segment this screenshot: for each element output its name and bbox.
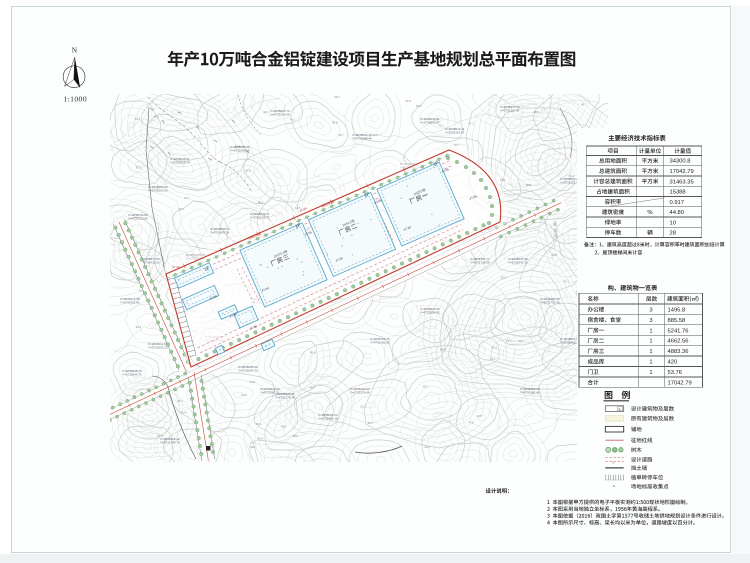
svg-text:Y=5731229.77: Y=5731229.77 bbox=[250, 215, 270, 219]
svg-text:50.5: 50.5 bbox=[135, 117, 141, 121]
svg-text:1495.8: 1495.8 bbox=[668, 307, 686, 313]
svg-text:42.3: 42.3 bbox=[372, 133, 378, 137]
svg-text:420: 420 bbox=[668, 360, 678, 366]
svg-text:Y=5731688.44: Y=5731688.44 bbox=[352, 136, 372, 140]
svg-text:45.2: 45.2 bbox=[177, 399, 183, 403]
svg-text:Y=5731220.60: Y=5731220.60 bbox=[128, 216, 148, 220]
svg-text:Y=5731119.47: Y=5731119.47 bbox=[445, 130, 464, 134]
svg-text:51.1: 51.1 bbox=[360, 405, 366, 409]
svg-text:47.2: 47.2 bbox=[469, 121, 475, 125]
svg-text:Y=5731743.59: Y=5731743.59 bbox=[470, 260, 490, 264]
svg-text:47.6: 47.6 bbox=[468, 420, 474, 424]
svg-text:Y=5731385.05: Y=5731385.05 bbox=[370, 340, 390, 344]
svg-text:Y=5731000.00: Y=5731000.00 bbox=[148, 188, 168, 192]
svg-text:46.4: 46.4 bbox=[569, 174, 575, 178]
svg-text:50.3: 50.3 bbox=[136, 165, 142, 169]
svg-text:45.3: 45.3 bbox=[256, 422, 262, 426]
svg-text:1: 1 bbox=[649, 328, 652, 334]
svg-text:48.5: 48.5 bbox=[534, 110, 540, 114]
svg-text:44.6: 44.6 bbox=[250, 380, 256, 384]
svg-text:39.0: 39.0 bbox=[334, 95, 340, 99]
svg-text:39.4: 39.4 bbox=[368, 421, 374, 425]
svg-text:Y=5731899.87: Y=5731899.87 bbox=[420, 120, 440, 124]
svg-text:17042.79: 17042.79 bbox=[670, 169, 694, 175]
svg-text:48.8: 48.8 bbox=[526, 183, 532, 187]
svg-text:Y=5731275.75: Y=5731275.75 bbox=[275, 395, 295, 399]
svg-text:Y=5731110.30: Y=5731110.30 bbox=[500, 108, 519, 112]
svg-text:46.9: 46.9 bbox=[241, 393, 247, 397]
svg-text:52.8: 52.8 bbox=[416, 104, 422, 108]
svg-text:17042.79: 17042.79 bbox=[668, 380, 692, 386]
svg-text:39.4: 39.4 bbox=[181, 410, 187, 414]
svg-text:49.7: 49.7 bbox=[518, 339, 524, 343]
svg-text:1:1000: 1:1000 bbox=[63, 95, 86, 104]
svg-text:Y=5731266.58: Y=5731266.58 bbox=[270, 112, 290, 116]
svg-text:41.9: 41.9 bbox=[492, 346, 498, 350]
svg-text:45.3: 45.3 bbox=[258, 436, 264, 440]
svg-text:44.5: 44.5 bbox=[476, 414, 482, 418]
svg-text:N: N bbox=[72, 46, 78, 55]
svg-text:44.80: 44.80 bbox=[670, 210, 685, 216]
svg-text:42.7: 42.7 bbox=[506, 339, 512, 343]
svg-text:39.5: 39.5 bbox=[551, 253, 557, 257]
svg-text:Y=5731541.33: Y=5731541.33 bbox=[508, 260, 528, 264]
svg-text:42.0: 42.0 bbox=[424, 445, 430, 449]
svg-text:46.9: 46.9 bbox=[406, 99, 412, 103]
svg-text:1: 1 bbox=[649, 349, 652, 355]
svg-text:52.7: 52.7 bbox=[338, 133, 344, 137]
svg-text:45.4: 45.4 bbox=[310, 386, 316, 390]
svg-text:Y=5731321.73: Y=5731321.73 bbox=[560, 180, 580, 184]
svg-text:Y=5731963.19: Y=5731963.19 bbox=[560, 340, 580, 344]
svg-text:1: 1 bbox=[649, 360, 652, 366]
svg-text:4662.56: 4662.56 bbox=[668, 339, 689, 345]
svg-text:0.917: 0.917 bbox=[670, 200, 685, 206]
svg-text:44.0: 44.0 bbox=[235, 145, 241, 149]
svg-text:4883.36: 4883.36 bbox=[668, 349, 689, 355]
svg-text:Y=5731165.45: Y=5731165.45 bbox=[520, 390, 540, 394]
svg-text:10: 10 bbox=[670, 220, 676, 226]
svg-text:40.8: 40.8 bbox=[332, 121, 338, 125]
svg-text:38.0: 38.0 bbox=[281, 425, 287, 429]
svg-text:39.7: 39.7 bbox=[423, 384, 429, 388]
svg-text:38.9: 38.9 bbox=[293, 434, 299, 438]
svg-text:31463.35: 31463.35 bbox=[670, 179, 694, 185]
svg-text:3: 3 bbox=[649, 307, 652, 313]
svg-text:47.6: 47.6 bbox=[246, 169, 252, 173]
svg-text:3: 3 bbox=[649, 318, 652, 324]
svg-text:Y=5731055.15: Y=5731055.15 bbox=[230, 148, 250, 152]
svg-text:53.76: 53.76 bbox=[668, 370, 683, 376]
svg-text:15388: 15388 bbox=[670, 190, 686, 196]
svg-text:Y=5731752.76: Y=5731752.76 bbox=[540, 300, 560, 304]
svg-text:47.09: 47.09 bbox=[172, 265, 180, 269]
svg-text:45.0: 45.0 bbox=[500, 178, 506, 182]
svg-text:Y=5731844.72: Y=5731844.72 bbox=[122, 372, 142, 376]
svg-text:1: 1 bbox=[649, 370, 652, 376]
svg-text:Y=5731018.34: Y=5731018.34 bbox=[170, 160, 190, 164]
svg-text:Y=5731486.18: Y=5731486.18 bbox=[318, 416, 338, 420]
svg-text:Y=5731064.32: Y=5731064.32 bbox=[238, 368, 258, 372]
svg-text:38.1: 38.1 bbox=[250, 445, 256, 449]
svg-text:F: F bbox=[619, 407, 621, 411]
svg-text:5241.76: 5241.76 bbox=[668, 328, 689, 334]
svg-text:50.1: 50.1 bbox=[564, 279, 570, 283]
svg-text:41.1: 41.1 bbox=[290, 117, 296, 121]
svg-text:40.2: 40.2 bbox=[258, 201, 264, 205]
svg-text:43.2: 43.2 bbox=[490, 357, 496, 361]
svg-text:Y=5731422.86: Y=5731422.86 bbox=[120, 300, 140, 304]
svg-text:51.7: 51.7 bbox=[184, 196, 190, 200]
svg-text:39.3: 39.3 bbox=[501, 276, 507, 280]
svg-text:Y=5731633.29: Y=5731633.29 bbox=[148, 345, 168, 349]
svg-text:42.5: 42.5 bbox=[136, 325, 142, 329]
svg-text:46.8: 46.8 bbox=[440, 348, 446, 352]
svg-text:Y=5731954.02: Y=5731954.02 bbox=[420, 310, 440, 314]
svg-text:40.7: 40.7 bbox=[581, 102, 587, 106]
svg-text:28: 28 bbox=[670, 231, 676, 237]
svg-text:39.7: 39.7 bbox=[178, 207, 184, 211]
svg-text:Y=5731807.91: Y=5731807.91 bbox=[210, 230, 230, 234]
svg-text:43.1: 43.1 bbox=[438, 124, 444, 128]
svg-text:Y=5731376.88: Y=5731376.88 bbox=[350, 390, 370, 394]
svg-text:44.9: 44.9 bbox=[263, 110, 269, 114]
svg-text:1: 1 bbox=[649, 339, 652, 345]
svg-text:885.58: 885.58 bbox=[668, 318, 686, 324]
svg-text:50.9: 50.9 bbox=[157, 434, 163, 438]
svg-text:45.6: 45.6 bbox=[153, 115, 159, 119]
svg-text:34300.8: 34300.8 bbox=[670, 159, 691, 165]
svg-text:Y=5731798.74: Y=5731798.74 bbox=[160, 440, 180, 444]
svg-text:45.8: 45.8 bbox=[310, 350, 316, 354]
